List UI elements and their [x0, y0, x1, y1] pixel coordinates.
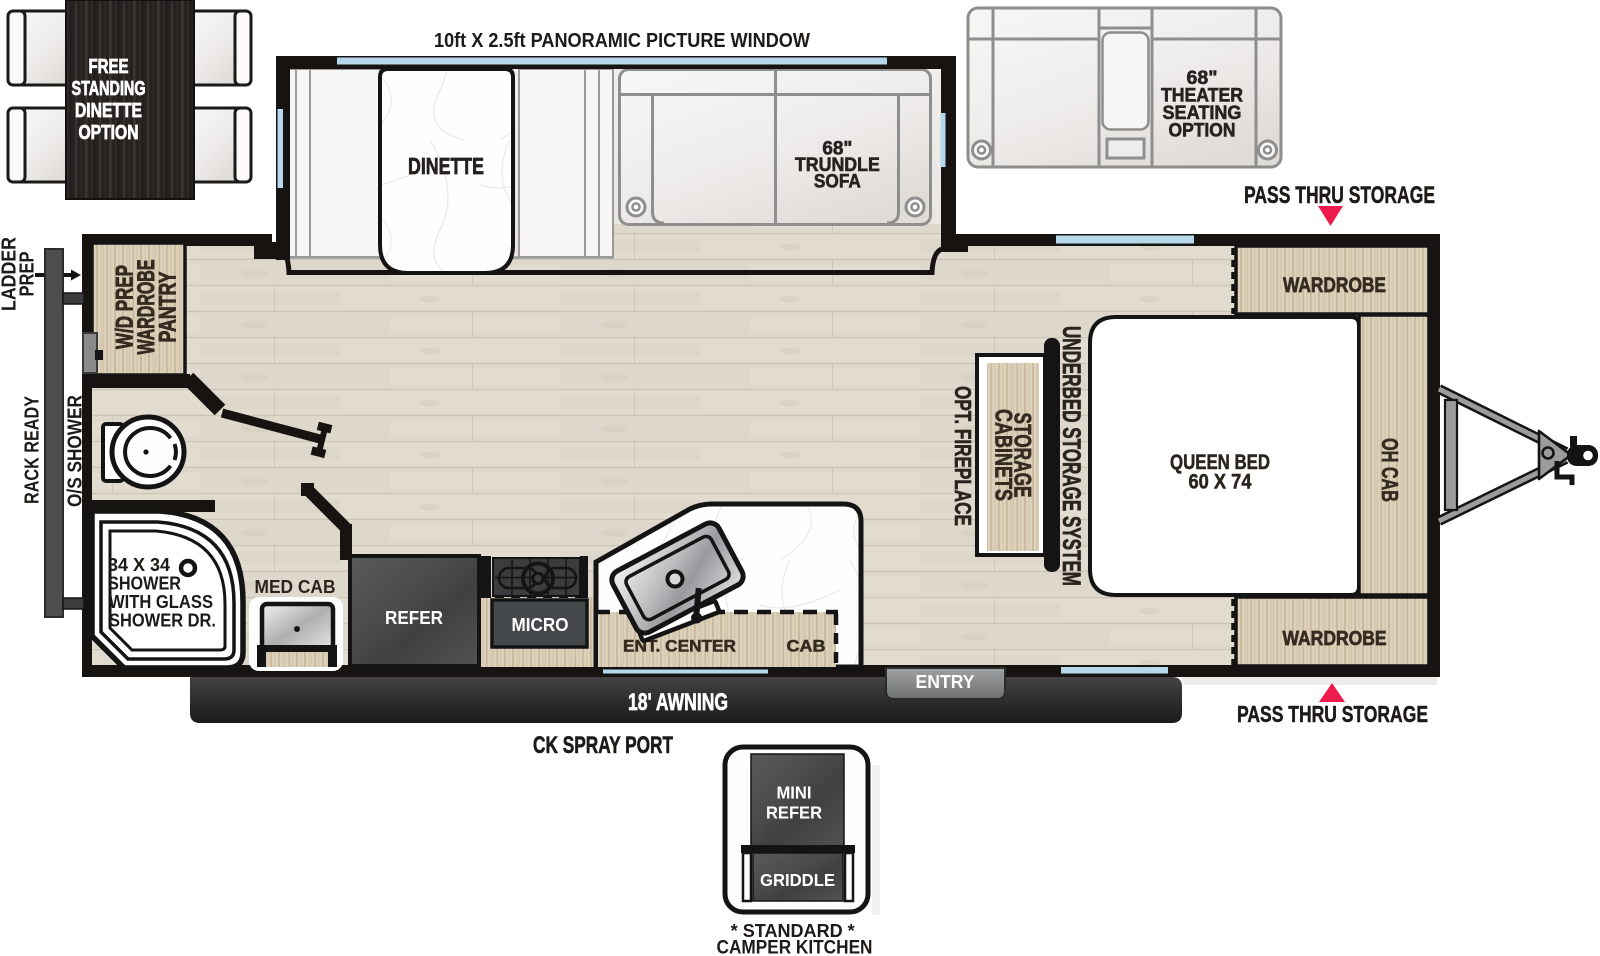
svg-text:CAB: CAB	[787, 638, 826, 656]
svg-text:OPT. FIREPLACE: OPT. FIREPLACE	[950, 386, 976, 526]
svg-text:OPTION: OPTION	[79, 122, 139, 144]
svg-text:SOFA: SOFA	[814, 170, 861, 192]
svg-text:GRIDDLE: GRIDDLE	[760, 870, 835, 890]
svg-text:OH CAB: OH CAB	[1377, 438, 1403, 502]
svg-text:CK SPRAY PORT: CK SPRAY PORT	[533, 732, 673, 759]
svg-text:REFER: REFER	[385, 608, 443, 628]
svg-text:STORAGECABINETS: STORAGECABINETS	[990, 409, 1036, 501]
svg-text:SHOWER DR.: SHOWER DR.	[109, 611, 216, 631]
svg-text:MINI: MINI	[777, 783, 812, 803]
svg-text:CAMPER KITCHEN: CAMPER KITCHEN	[717, 938, 873, 956]
svg-text:ENTRY: ENTRY	[916, 672, 975, 692]
svg-text:34 X 34: 34 X 34	[108, 555, 170, 575]
svg-text:W/D PREPWARDROBEPANTRY: W/D PREPWARDROBEPANTRY	[112, 260, 182, 355]
svg-text:O/S SHOWER: O/S SHOWER	[65, 395, 87, 507]
svg-text:UNDERBED STORAGE SYSTEM: UNDERBED STORAGE SYSTEM	[1057, 326, 1085, 586]
svg-text:FREE: FREE	[89, 56, 129, 78]
svg-text:10ft X 2.5ft PANORAMIC PICTURE: 10ft X 2.5ft PANORAMIC PICTURE WINDOW	[434, 30, 810, 52]
svg-text:MICRO: MICRO	[512, 615, 569, 635]
svg-text:REFER: REFER	[766, 803, 822, 823]
svg-text:PASS THRU STORAGE: PASS THRU STORAGE	[1237, 701, 1428, 727]
svg-text:18' AWNING: 18' AWNING	[628, 689, 728, 716]
svg-text:ENT. CENTER: ENT. CENTER	[623, 638, 736, 656]
svg-text:DINETTE: DINETTE	[75, 100, 142, 122]
svg-text:RACK READY: RACK READY	[22, 395, 44, 504]
svg-text:STANDING: STANDING	[72, 78, 146, 100]
svg-text:SHOWER: SHOWER	[108, 574, 181, 594]
svg-text:60 X 74: 60 X 74	[1189, 471, 1252, 494]
svg-text:DINETTE: DINETTE	[408, 153, 484, 179]
svg-text:PASS THRU STORAGE: PASS THRU STORAGE	[1244, 182, 1435, 209]
svg-text:WARDROBE: WARDROBE	[1283, 273, 1386, 297]
svg-text:WITH GLASS: WITH GLASS	[109, 592, 213, 612]
svg-text:MED CAB: MED CAB	[255, 576, 336, 597]
svg-text:WARDROBE: WARDROBE	[1283, 628, 1387, 650]
svg-text:OPTION: OPTION	[1169, 120, 1236, 142]
